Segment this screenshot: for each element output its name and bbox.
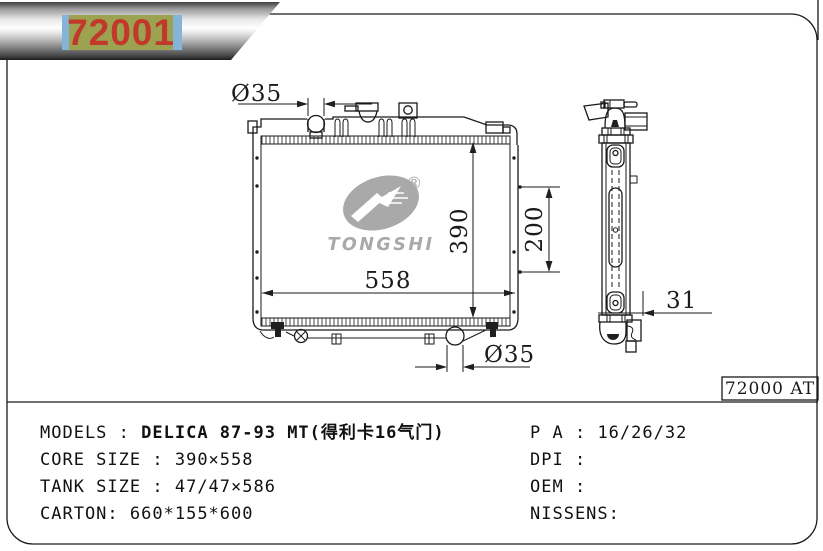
spec-row-oem: OEM :: [530, 474, 687, 501]
upper-side-bracket: [607, 145, 624, 167]
ref-code-text: 72000 AT: [725, 379, 815, 399]
drain-plug: [295, 330, 308, 343]
dimension-core-width: 558: [262, 268, 515, 296]
spec-label: TANK SIZE: [40, 477, 141, 497]
spec-separator: :: [564, 423, 598, 443]
dimension-core-height: 390: [447, 142, 476, 318]
spec-label: CARTON: [40, 504, 107, 524]
spec-column-right: P A : 16/26/32 DPI : OEM : NISSENS:: [530, 420, 687, 528]
spec-value: 390×558: [175, 450, 254, 470]
spec-row-models: MODELS : DELICA 87-93 MT(得利卡16气门): [40, 420, 445, 447]
spec-separator: :: [107, 504, 129, 524]
spec-row-nissens: NISSENS:: [530, 501, 687, 528]
spec-row-tank-size: TANK SIZE : 47/47×586: [40, 474, 445, 501]
spec-column-left: MODELS : DELICA 87-93 MT(得利卡16气门) CORE S…: [40, 420, 445, 528]
svg-text:200: 200: [522, 206, 548, 253]
spec-row-pa: P A : 16/26/32: [530, 420, 687, 447]
spec-separator: :: [564, 477, 598, 497]
spec-separator: :: [141, 477, 175, 497]
tongshi-logo: ® TONGSHI: [327, 166, 434, 255]
radiator-cap: [345, 103, 378, 122]
spec-separator: :: [564, 450, 598, 470]
bottom-tank-side: [600, 322, 626, 344]
ref-code-box: 72000 AT: [722, 377, 818, 400]
lower-side-bracket: [607, 292, 624, 313]
spec-value: 16/26/32: [597, 423, 687, 443]
svg-text:31: 31: [666, 288, 697, 314]
side-foot: [626, 341, 636, 352]
top-right-bracket: [486, 122, 503, 133]
registered-mark: ®: [406, 174, 423, 194]
spec-label: MODELS: [40, 423, 107, 443]
spec-label: DPI: [530, 450, 564, 470]
radiator-front-view: ® TONGSHI: [248, 103, 522, 345]
spec-value: 47/47×586: [175, 477, 276, 497]
spec-label: NISSENS: [530, 504, 609, 524]
svg-text:558: 558: [365, 268, 412, 294]
spec-label: OEM: [530, 477, 564, 497]
spec-row-carton: CARTON: 660*155*600: [40, 501, 445, 528]
overflow-nipple: [624, 102, 637, 107]
spec-separator: :: [141, 450, 175, 470]
spec-label: CORE SIZE: [40, 450, 141, 470]
top-mount-bracket: [399, 103, 417, 118]
dimension-bracket-span: 200: [521, 187, 560, 272]
part-number-banner: 72001: [0, 2, 280, 60]
part-number-text: 72001: [67, 15, 175, 50]
spec-value: DELICA 87-93 MT(得利卡16气门): [141, 423, 444, 443]
catalog-page: ® TONGSHI Ø35 558 390 200: [0, 0, 823, 551]
filler-neck: [308, 116, 325, 139]
svg-text:Ø35: Ø35: [231, 81, 282, 107]
part-number-label: 72001: [62, 15, 182, 50]
spec-row-dpi: DPI :: [530, 447, 687, 474]
dimension-bottom-diameter: Ø35: [415, 342, 535, 372]
spec-separator: :: [609, 504, 620, 524]
spec-value: 660*155*600: [130, 504, 254, 524]
spec-label: P A: [530, 423, 564, 443]
svg-text:Ø35: Ø35: [484, 342, 535, 368]
spec-separator: :: [107, 423, 141, 443]
svg-text:390: 390: [447, 208, 473, 255]
logo-brand-text: TONGSHI: [327, 235, 434, 255]
tank-ribs: [335, 119, 415, 137]
spec-row-core-size: CORE SIZE : 390×558: [40, 447, 445, 474]
radiator-side-view: [584, 100, 647, 352]
